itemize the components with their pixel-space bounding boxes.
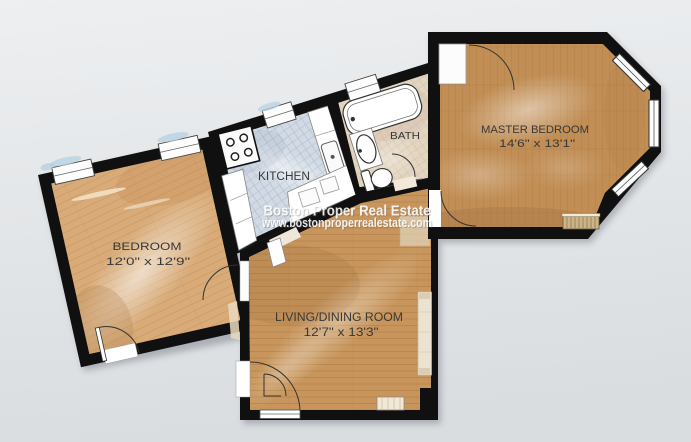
svg-text:BATH: BATH [390,130,420,142]
svg-text:12'7" x 13'3": 12'7" x 13'3" [304,325,379,339]
svg-text:MASTER BEDROOM: MASTER BEDROOM [481,124,589,136]
svg-text:12'0" x 12'9": 12'0" x 12'9" [106,256,190,268]
svg-text:www.bostonproperrealestate.com: www.bostonproperrealestate.com [261,216,432,230]
svg-text:BEDROOM: BEDROOM [113,241,182,253]
svg-text:14'6" x 13'1": 14'6" x 13'1" [499,138,575,150]
svg-text:LIVING/DINING ROOM: LIVING/DINING ROOM [275,310,403,324]
svg-text:KITCHEN: KITCHEN [258,171,310,183]
